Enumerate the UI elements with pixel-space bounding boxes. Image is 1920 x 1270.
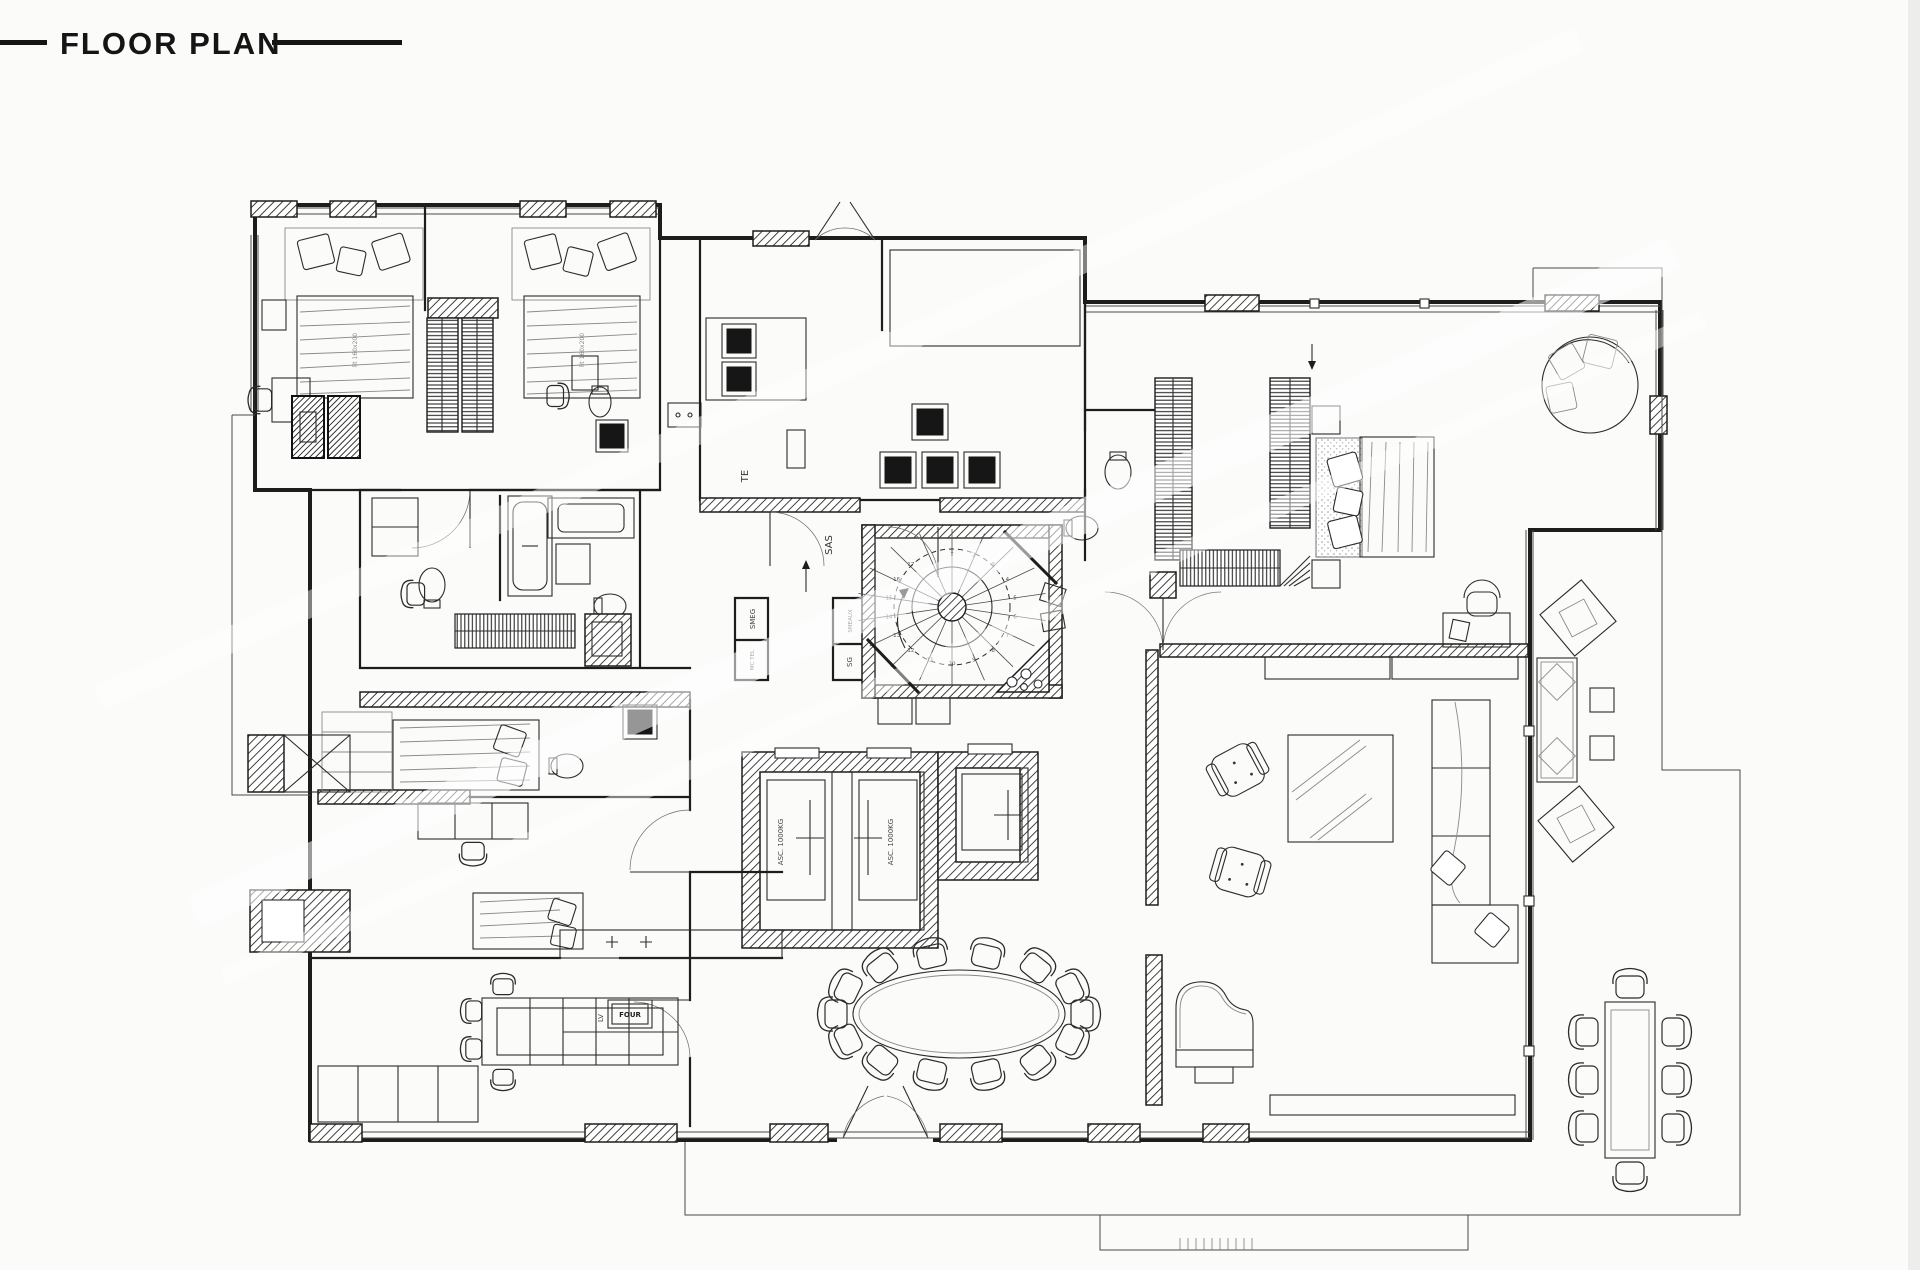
title-rule-right	[272, 40, 402, 45]
floor-plan-drawing: FLOOR PLAN	[0, 0, 1920, 1270]
stair-step-number: 17	[907, 562, 914, 568]
washer	[964, 452, 1000, 488]
wall-pier	[585, 1124, 677, 1142]
wall-pier	[428, 298, 498, 318]
dishwasher-label: LV	[597, 1014, 605, 1022]
page-edge	[1908, 0, 1920, 1270]
bed-size-label: lit 160x200	[579, 333, 586, 367]
wall-pier	[1650, 396, 1667, 434]
stair-step-number: 13	[893, 633, 900, 639]
clothes-rack-row	[455, 614, 575, 648]
bedroom-1-2-wardrobes	[427, 298, 498, 432]
elevator-label: ASC. 1000KG	[887, 819, 895, 865]
wall-pier	[310, 1124, 362, 1142]
wall-pier	[251, 201, 297, 217]
wall-pier	[1205, 295, 1259, 311]
page-background	[0, 0, 1920, 1270]
stair-step-number: 1	[950, 549, 954, 555]
window-mullion	[1524, 726, 1534, 736]
stair-step-number: 5	[1013, 595, 1017, 601]
wall	[1160, 644, 1528, 657]
entry-hall-label: SAS	[824, 535, 835, 555]
shaft-label: SG	[846, 657, 854, 667]
stair-step-number: 4	[1006, 577, 1010, 583]
wall-pier	[330, 201, 376, 217]
wall-pier	[753, 231, 809, 246]
wall-pier	[520, 201, 566, 217]
wall-pier	[770, 1124, 828, 1142]
window-mullion	[1420, 299, 1429, 308]
wall-pier	[1088, 1124, 1140, 1142]
elevator-door	[968, 744, 1012, 754]
stair-step-number: 9	[972, 658, 976, 664]
washer	[922, 452, 958, 488]
shower	[600, 424, 624, 448]
wall-pier	[610, 201, 656, 217]
page-title: FLOOR PLAN	[60, 26, 282, 61]
elevator-door	[775, 748, 819, 758]
oven-label: FOUR	[619, 1011, 641, 1019]
wall-pier	[1203, 1124, 1249, 1142]
wall-pier	[940, 1124, 1002, 1142]
washer	[722, 362, 756, 396]
washer	[722, 324, 756, 358]
corridor-label: TE	[740, 470, 751, 483]
elevator-door	[867, 748, 911, 758]
window-mullion	[1310, 299, 1319, 308]
title-rule-left	[0, 40, 47, 45]
stair-step-number: 8	[991, 648, 995, 654]
window-mullion	[1524, 1046, 1534, 1056]
window-mullion	[1524, 896, 1534, 906]
wall-pier	[700, 498, 860, 512]
stair-step-number: 12	[907, 648, 914, 654]
dryer	[912, 404, 948, 440]
washer	[880, 452, 916, 488]
shaft-label: SMEG	[749, 609, 757, 629]
elevator-label: ASC. 1000KG	[777, 819, 785, 865]
bed-size-label: lit 160x200	[352, 333, 359, 367]
